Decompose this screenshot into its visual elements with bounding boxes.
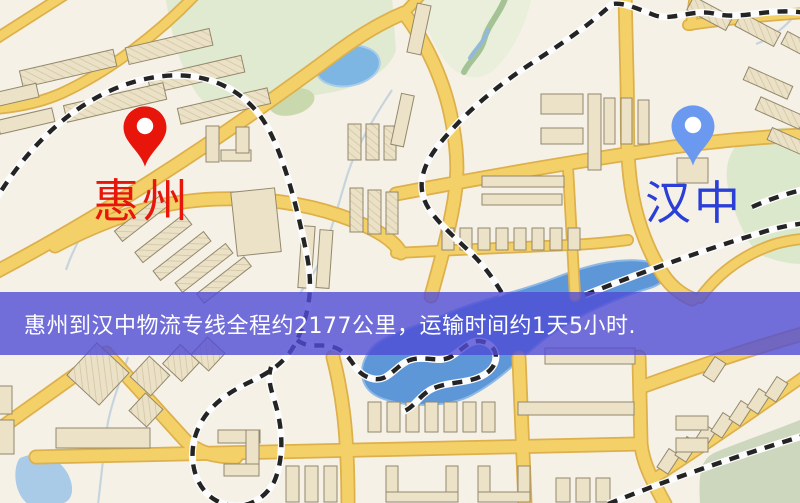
origin-city-label: 惠州 [93, 178, 191, 224]
destination-pin-icon [670, 104, 716, 167]
map-canvas [0, 0, 800, 503]
route-info-text: 惠州到汉中物流专线全程约2177公里，运输时间约1天5小时. [24, 308, 636, 340]
origin-pin-icon [122, 105, 168, 168]
map-screenshot: 惠州 汉中 惠州到汉中物流专线全程约2177公里，运输时间约1天5小时. [0, 0, 800, 503]
route-info-banner: 惠州到汉中物流专线全程约2177公里，运输时间约1天5小时. [0, 292, 800, 355]
destination-city-label: 汉中 [645, 180, 743, 226]
